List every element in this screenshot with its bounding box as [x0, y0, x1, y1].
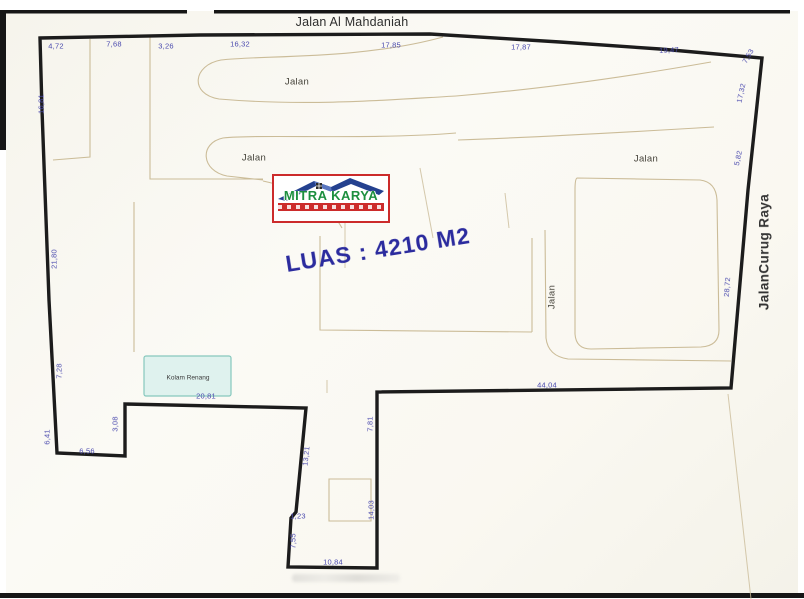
dimension-label: 5,82 — [732, 150, 744, 167]
dimension-label: 7,53 — [740, 47, 755, 65]
street-label: Jalan — [547, 285, 558, 309]
dimension-label: 3,08 — [111, 416, 120, 431]
street-label: Jalan — [634, 154, 658, 165]
dimension-label: 6,41 — [43, 429, 52, 444]
dimension-label: 7,28 — [55, 363, 64, 378]
site-plan-photo: Jalan Al Mahdaniah JalanCurug Raya LUAS … — [0, 0, 804, 599]
dimension-label: 19,47 — [659, 45, 679, 55]
dimension-label: 7,55 — [289, 533, 298, 548]
dimension-label: 7,81 — [366, 416, 375, 431]
dimension-label: 3,26 — [158, 42, 173, 51]
measurement-labels-layer: 4,727,683,2616,3217,8517,8719,477,5317,3… — [0, 0, 804, 599]
dimension-label: 21,80 — [50, 249, 59, 269]
dimension-label: 6,56 — [79, 447, 94, 456]
street-label: Jalan — [285, 77, 309, 88]
dimension-label: 20,81 — [196, 392, 216, 401]
dimension-label: 28,72 — [722, 277, 732, 297]
dimension-label: 17,32 — [735, 82, 748, 103]
dimension-label: 16,81 — [37, 94, 46, 114]
dimension-label: 10,84 — [323, 558, 343, 567]
dimension-label: 1,23 — [290, 512, 305, 521]
dimension-label: 7,68 — [106, 40, 121, 49]
street-label: Jalan — [242, 153, 266, 164]
dimension-label: 14,03 — [367, 500, 376, 520]
dimension-label: 44,04 — [537, 381, 557, 390]
dimension-label: 16,32 — [230, 40, 250, 49]
dimension-label: 17,85 — [381, 41, 401, 50]
dimension-label: 13,21 — [300, 446, 311, 467]
dimension-label: 4,72 — [48, 42, 63, 51]
dimension-label: 17,87 — [511, 43, 531, 52]
